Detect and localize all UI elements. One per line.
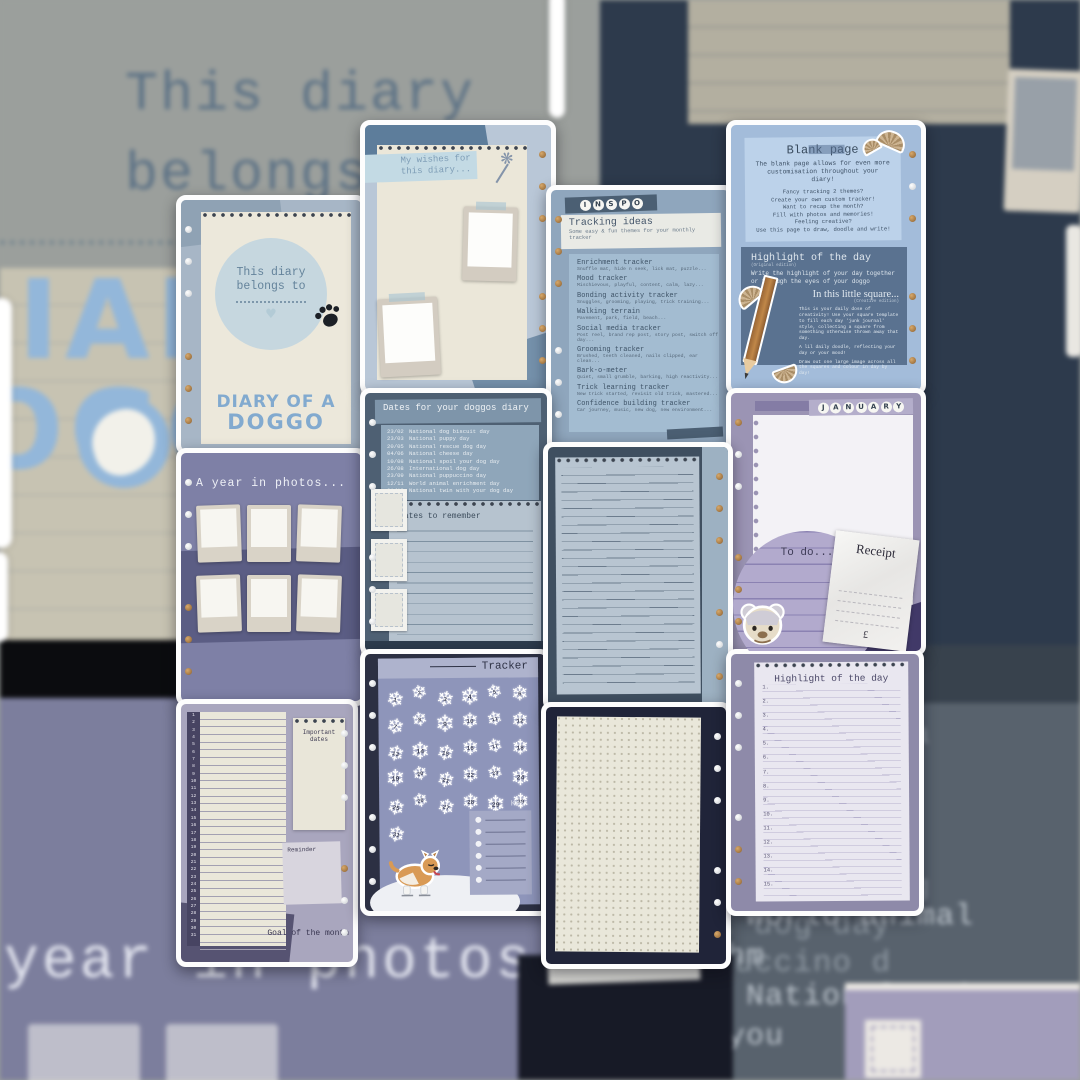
square-paragraph: A lil daily doodle, reflecting your day … (799, 345, 899, 357)
day-line (200, 912, 286, 920)
polaroid-ghost (28, 1024, 140, 1080)
polaroid-row (197, 505, 341, 562)
card-dotted-page (541, 702, 731, 969)
title-blank-line (430, 666, 476, 667)
backdrop-polaroid (1004, 69, 1080, 214)
card-edge-sliver (549, 0, 565, 118)
highlight-title: Highlight of the day (751, 253, 907, 264)
letter-bead: P (618, 198, 629, 209)
snowflake-day: ❄ 15 (430, 739, 461, 771)
binder-holes (731, 654, 747, 911)
day-line (200, 789, 286, 797)
blank-page-note: Blank page The blank page allows for eve… (744, 136, 901, 242)
numbered-line: 14. (764, 867, 902, 882)
polaroid-frame (247, 505, 291, 562)
day-line (200, 827, 286, 835)
belongs-text: This diary (236, 266, 305, 279)
snowflake-day: ❄ 8 (406, 707, 433, 736)
binder-holes (535, 125, 551, 390)
day-line (200, 873, 286, 881)
day-line (200, 881, 286, 889)
backdrop-paper-sliver (1066, 225, 1080, 357)
washi-tape (755, 401, 815, 411)
lined-paper (555, 457, 701, 695)
tracking-ideas-list: Enrichment tracker Snuffle mat, hide n s… (569, 254, 719, 432)
belongs-circle: This diary belongs to ♥ (215, 238, 327, 350)
day-line (200, 727, 286, 735)
day-line (200, 774, 286, 782)
numbered-line: 10. (763, 810, 901, 825)
numbered-line: 15. (764, 881, 902, 896)
polaroid-row (197, 575, 341, 632)
snowflake-day: ❄ 12 (507, 708, 532, 735)
key-label: Key (511, 799, 525, 808)
letter-bead: N (843, 402, 854, 413)
card-tracking-ideas: INSPO Tracking ideas Some easy & fun the… (546, 185, 734, 449)
snowflake-day: ❄ 25 (380, 793, 411, 825)
snowflake-day: ❄ 18 (508, 735, 533, 762)
reminder-note: Reminder (282, 841, 342, 904)
day-line (200, 712, 286, 720)
letter-bead: S (605, 198, 616, 209)
binder-holes (337, 704, 353, 962)
card-doggo-dates: Dates for your doggos diary 23/02Nationa… (360, 388, 552, 656)
day-line (200, 835, 286, 843)
card-blank-page-info: Blank page The blank page allows for eve… (726, 120, 926, 395)
day-line (200, 766, 286, 774)
binder-holes (731, 393, 747, 651)
day-line (200, 920, 286, 928)
blank-page-intro: The blank page allows for even more cust… (755, 159, 891, 184)
ruled-lines (561, 467, 695, 691)
receipt-scrap: Receipt £ (822, 530, 919, 651)
card-monthly-overview: 1234567891011121314151617181920212223242… (176, 699, 358, 967)
snowflake-day: ❄ 1 (379, 685, 410, 717)
pencil-shaving-icon (771, 363, 801, 387)
day-number-column: 1234567891011121314151617181920212223242… (187, 712, 200, 946)
numbered-line: 9. (763, 796, 901, 811)
tracking-idea-item: Confidence building tracker Car journey,… (577, 400, 719, 413)
date-row: 12/11World animal enrichment day (387, 480, 539, 487)
dot-grid-paper (555, 716, 701, 952)
snowflake-day: ❄ 16 (458, 736, 483, 763)
dog-logo-icon (78, 396, 170, 488)
polaroid-frame (377, 296, 441, 377)
snowflake-day: ❄ 11 (481, 706, 508, 735)
letter-bead: Y (893, 401, 904, 412)
polaroid-frame (462, 206, 518, 281)
key-box (469, 810, 532, 895)
numbered-lines: 1.2.3.4.5.6.7.8.9.10.11.12.13.14.15. (762, 684, 901, 898)
date-row: 26/08International dog day (387, 465, 539, 472)
date-row: 10/08National spoil your dog day (387, 458, 539, 465)
card-my-wishes: My wishes forthis diary... ❋ (360, 120, 556, 395)
snowflake-day: ❄ 5 (481, 679, 508, 708)
polaroid-frame (196, 574, 242, 633)
snowflake-day: ❄ 23 (482, 760, 509, 789)
polaroid-frame (296, 504, 342, 563)
date-row: 23/02National dog biscuit day (387, 428, 539, 435)
dates-title: Dates for your doggos diary (383, 403, 529, 413)
card-january-todo: JANUARY To do... Receipt £ (726, 388, 926, 656)
perforation-edge (754, 661, 908, 669)
date-row: 04/06National cheese day (387, 450, 539, 457)
card-edge-sliver (0, 298, 12, 548)
perforation-edge (389, 501, 541, 508)
tracking-idea-item: Bonding activity tracker Snuggles, groom… (577, 292, 719, 305)
day-line (200, 820, 286, 828)
snowflake-day: ❄ 10 (457, 709, 482, 736)
day-line (200, 781, 286, 789)
polaroid-frame (296, 574, 342, 633)
ruled-lines (397, 521, 533, 635)
perforation-edge (555, 457, 699, 465)
letter-bead: A (830, 402, 841, 413)
numbered-line: 11. (763, 824, 901, 839)
inspo-tape: INSPO (565, 194, 658, 213)
letter-bead: O (631, 197, 642, 208)
washi-tape (667, 427, 723, 440)
tracker-title: Tracker (482, 660, 528, 672)
january-beads: JANUARY (809, 398, 913, 416)
backdrop-lavender-corner (845, 983, 1080, 1080)
letter-bead: A (868, 401, 879, 412)
highlight-paper: Highlight of the day 1.2.3.4.5.6.7.8.9.1… (754, 661, 910, 901)
card-year-in-photos: A year in photos... (176, 448, 366, 706)
letter-bead: N (592, 199, 603, 210)
snowflake-day: ❄ 27 (430, 793, 461, 825)
polaroid-frame (247, 575, 291, 632)
product-collage: This diary belongs to IARY OGG year in p… (0, 0, 1080, 1080)
tracking-idea-item: Bark-o-meter Quiet, small grumble, barki… (577, 367, 719, 380)
dates-to-remember-pad: Dates to remember (389, 501, 541, 641)
numbered-line: 5. (763, 740, 901, 755)
snowflake-day: ❄ 21 (430, 766, 461, 798)
letter-bead: U (855, 401, 866, 412)
day-line (200, 866, 286, 874)
highlight-edition: (Original edition) (751, 264, 907, 268)
dates-to-remember-title: Dates to remember (399, 512, 541, 521)
day-line (200, 850, 286, 858)
tracking-idea-item: Grooming tracker Brushed, teeth cleaned,… (577, 346, 719, 364)
numbered-line: 1. (762, 684, 900, 699)
binder-holes (551, 190, 567, 444)
square-paragraph: This is your daily dose of creativity! U… (799, 307, 899, 342)
day-line (200, 743, 286, 751)
polaroid-ghost (166, 1024, 278, 1080)
letter-bead: R (881, 401, 892, 412)
washi-tape (809, 145, 845, 154)
day-line (200, 889, 286, 897)
day-line (200, 858, 286, 866)
day-line (200, 943, 286, 951)
day-line (200, 812, 286, 820)
letter-bead: I (579, 199, 590, 210)
snowflake-day: ❄ 31 (381, 820, 412, 852)
snowflake-day: ❄ 6 (507, 681, 532, 708)
day-line (200, 804, 286, 812)
tracking-idea-item: Enrichment tracker Snuffle mat, hide n s… (577, 259, 719, 272)
corgi-skating-icon (386, 849, 448, 898)
snowflake-day: ❄ 2 (406, 680, 433, 709)
binder-holes (712, 447, 728, 706)
numbered-line: 8. (763, 782, 901, 797)
tracking-idea-item: Walking terrain Pavement, park, field, b… (577, 308, 719, 321)
binder-holes (181, 200, 197, 450)
day-lines-strip (200, 712, 286, 946)
date-row: 20/05National rescue dog day (387, 443, 539, 450)
polaroid-frame (196, 504, 242, 563)
receipt-title: Receipt (833, 538, 918, 564)
binder-holes (905, 125, 921, 390)
tracking-idea-item: Trick learning tracker New trick started… (577, 384, 719, 397)
name-line (236, 301, 306, 303)
binder-holes (181, 453, 197, 701)
letter-bead: J (818, 402, 829, 413)
perforation-edge (201, 212, 351, 219)
numbered-line: 4. (763, 726, 901, 741)
backdrop-lined-strip (688, 0, 1010, 124)
diary-of-a-doggo-logo: DIARY OF A DOGGO (201, 392, 351, 434)
tracking-ideas-subtitle: Some easy & fun themes for your monthly … (569, 227, 721, 241)
tracking-ideas-header: Tracking ideas Some easy & fun themes fo… (561, 213, 721, 249)
snowflake-day: ❄ 9 (431, 710, 459, 740)
numbered-line: 7. (763, 768, 901, 783)
notepad-paper: This diary belongs to ♥ DIARY OF A DOGGO (201, 212, 351, 444)
year-in-photos-title: A year in photos... (181, 477, 361, 490)
reminder-title: Reminder (287, 845, 340, 853)
numbered-line: 13. (764, 853, 902, 868)
day-line (200, 904, 286, 912)
snowflake-day: ❄ 22 (458, 763, 483, 790)
stamp-frame-icon (865, 1020, 921, 1078)
tracking-idea-item: Mood tracker Mischievous, playful, conte… (577, 275, 719, 288)
tracking-idea-item: Social media tracker Post reel, brand re… (577, 325, 719, 343)
tracker-paper: Tracker ❄ 1 ❄ 2 (378, 657, 540, 905)
numbered-line: 6. (763, 754, 901, 769)
day-line (200, 897, 286, 905)
numbered-line: 12. (763, 839, 901, 854)
card-snowflake-tracker: Tracker ❄ 1 ❄ 2 (360, 649, 550, 916)
card-lined-page (543, 442, 733, 711)
day-line (200, 735, 286, 743)
washi-tape-title: My wishes forthis diary... (365, 151, 477, 183)
binder-holes (365, 654, 381, 911)
date-row: 01/12National twin with your dog day (387, 487, 539, 494)
snowflake-day: ❄ 17 (482, 733, 509, 762)
binder-holes (365, 393, 381, 651)
day-line (200, 720, 286, 728)
blank-page-questions: Fancy tracking 2 themes?Create your own … (745, 187, 901, 234)
card-highlight-of-day-page: Highlight of the day 1.2.3.4.5.6.7.8.9.1… (726, 649, 924, 916)
numbered-line: 2. (762, 698, 900, 713)
day-line (200, 750, 286, 758)
date-row: 23/03National puppy day (387, 435, 539, 442)
card-edge-sliver (0, 552, 8, 642)
day-line (200, 797, 286, 805)
tracker-header: Tracker (378, 657, 538, 678)
square-paragraph: Draw out one large image across all the … (799, 360, 899, 377)
card-this-diary-belongs-to: This diary belongs to ♥ DIARY OF A DOGGO (176, 195, 366, 455)
numbered-line: 3. (763, 712, 901, 727)
belongs-text2: belongs to (236, 280, 305, 293)
binder-holes (710, 707, 726, 964)
snowflake-day: ❄ 19 (381, 765, 409, 795)
date-row: 23/09National puppuccino day (387, 472, 539, 479)
day-line (200, 843, 286, 851)
day-line (200, 758, 286, 766)
